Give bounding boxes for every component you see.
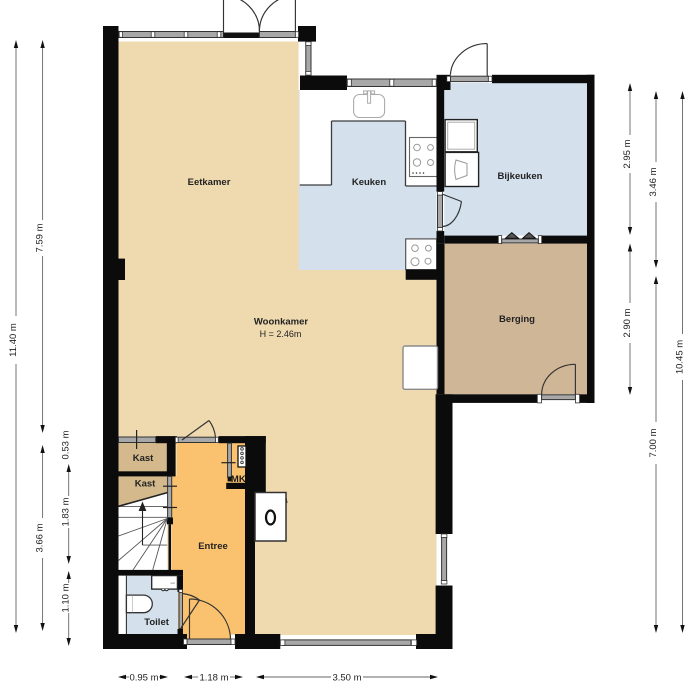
svg-text:Kast: Kast	[135, 479, 156, 490]
svg-text:2.95 m: 2.95 m	[622, 139, 633, 168]
svg-text:Kast: Kast	[133, 453, 154, 464]
svg-text:Berging: Berging	[499, 314, 535, 325]
svg-text:7.59 m: 7.59 m	[35, 223, 46, 252]
svg-text:Toilet: Toilet	[144, 617, 169, 628]
svg-text:Bijkeuken: Bijkeuken	[498, 171, 543, 182]
svg-text:1.18 m: 1.18 m	[199, 673, 228, 684]
svg-text:Keuken: Keuken	[352, 177, 387, 188]
svg-text:3.50 m: 3.50 m	[332, 673, 361, 684]
svg-text:1.83 m: 1.83 m	[61, 497, 72, 526]
svg-text:10.45 m: 10.45 m	[675, 340, 686, 374]
svg-text:0.53 m: 0.53 m	[61, 430, 72, 459]
svg-text:H = 2.46m: H = 2.46m	[260, 329, 302, 339]
svg-text:Woonkamer: Woonkamer	[254, 317, 309, 328]
svg-text:7.00 m: 7.00 m	[648, 428, 659, 457]
svg-text:3.46 m: 3.46 m	[648, 167, 659, 196]
svg-text:0.95 m: 0.95 m	[129, 673, 158, 684]
svg-text:Entree: Entree	[198, 541, 228, 552]
svg-text:1.10 m: 1.10 m	[61, 583, 72, 612]
svg-text:11.40 m: 11.40 m	[8, 323, 19, 357]
svg-text:Eetkamer: Eetkamer	[188, 177, 231, 188]
svg-text:MK: MK	[231, 474, 246, 485]
svg-text:3.66 m: 3.66 m	[35, 523, 46, 552]
svg-text:2.90 m: 2.90 m	[622, 308, 633, 337]
